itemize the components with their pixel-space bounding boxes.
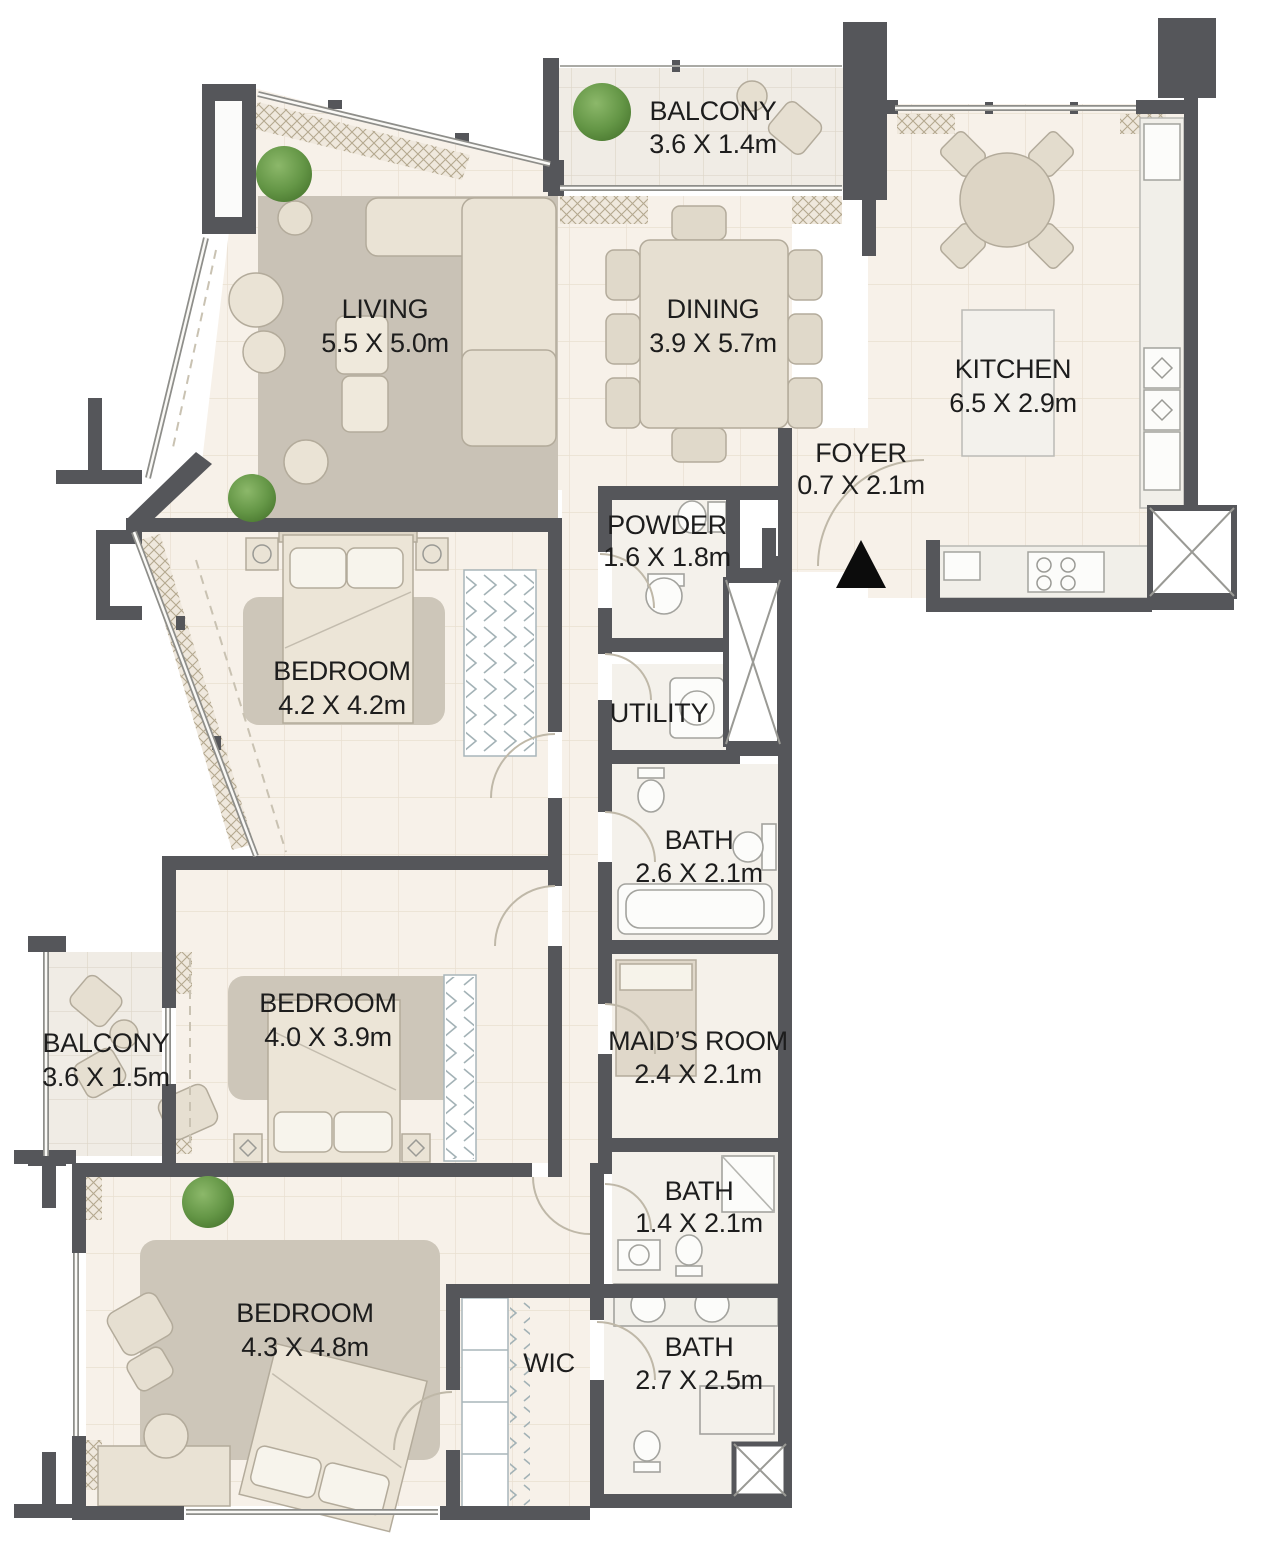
dining-chair: [606, 314, 640, 364]
foyer-label: FOYER: [815, 438, 907, 468]
sink: [629, 1245, 649, 1265]
shaft-icon: [1150, 508, 1234, 596]
closet: [462, 1298, 508, 1508]
maids-room-dims: 2.4 X 2.1m: [634, 1059, 762, 1089]
bedroom-1-dims: 4.2 X 4.2m: [278, 690, 406, 720]
pouf: [284, 440, 328, 484]
desk-chair: [144, 1414, 188, 1458]
dining-dims: 3.9 X 5.7m: [649, 328, 777, 358]
balcony-left-dims: 3.6 X 1.5m: [42, 1062, 170, 1092]
maids-room-label: MAID’S ROOM: [608, 1026, 788, 1056]
nightstand: [234, 1134, 262, 1162]
wic-label: WIC: [523, 1348, 575, 1378]
bedroom-3-dims: 4.3 X 4.8m: [241, 1332, 369, 1362]
pillar-recess: [215, 101, 242, 217]
sink: [944, 552, 980, 580]
floor-plan: BALCONY 3.6 X 1.4m LIVING 5.5 X 5.0m DIN…: [0, 0, 1265, 1557]
bath-1-label: BATH: [665, 825, 734, 855]
powder-dims: 1.6 X 1.8m: [603, 542, 731, 572]
living-dims: 5.5 X 5.0m: [321, 328, 449, 358]
vanity: [762, 824, 776, 870]
side-table: [278, 201, 312, 235]
round-table: [960, 153, 1054, 247]
pillow: [290, 548, 346, 588]
bathtub: [618, 884, 772, 934]
fridge: [1144, 432, 1180, 490]
pillow: [620, 964, 692, 990]
dining-chair: [606, 378, 640, 428]
foyer-dims: 0.7 X 2.1m: [797, 470, 925, 500]
shaft-icon: [726, 580, 780, 744]
balcony-left-label: BALCONY: [43, 1028, 170, 1058]
bath-3-dims: 2.7 X 2.5m: [635, 1365, 763, 1395]
nightstand: [416, 538, 448, 570]
kitchen-dims: 6.5 X 2.9m: [949, 388, 1077, 418]
armchair: [243, 331, 285, 373]
utility-label: UTILITY: [610, 698, 709, 728]
bath-2-dims: 1.4 X 2.1m: [635, 1208, 763, 1238]
bedroom-2-label: BEDROOM: [259, 988, 396, 1018]
pillow: [347, 548, 403, 588]
wic-furniture: [462, 1298, 530, 1508]
dining-label: DINING: [667, 294, 760, 324]
bedroom-3-furniture: [98, 1240, 440, 1532]
wardrobe-hatching: [446, 977, 474, 1159]
bedroom-1-label: BEDROOM: [273, 656, 410, 686]
dining-chair: [788, 250, 822, 300]
kitchen-label: KITCHEN: [955, 354, 1071, 384]
plant-icon: [256, 146, 312, 202]
toilet: [638, 780, 664, 812]
sofa-chaise: [462, 350, 556, 446]
nightstand: [246, 538, 278, 570]
wardrobe-hatching: [466, 572, 534, 754]
pillow: [334, 1112, 392, 1152]
bath-3-label: BATH: [665, 1332, 734, 1362]
plant-icon: [228, 474, 276, 522]
bedroom-2-dims: 4.0 X 3.9m: [264, 1022, 392, 1052]
toilet: [634, 1431, 660, 1461]
living-label: LIVING: [342, 294, 429, 324]
toilet-tank: [634, 1462, 660, 1472]
appliance: [1144, 348, 1180, 388]
bath-2-label: BATH: [665, 1176, 734, 1206]
plant-icon: [573, 83, 631, 141]
sink: [646, 578, 682, 614]
toilet-tank: [638, 768, 664, 778]
dining-chair: [672, 428, 726, 462]
oven: [1144, 124, 1180, 180]
closet-hatching: [510, 1300, 530, 1506]
dining-chair: [606, 250, 640, 300]
pillow: [274, 1112, 332, 1152]
nightstand: [402, 1134, 430, 1162]
appliance: [1144, 390, 1180, 430]
dining-chair: [788, 314, 822, 364]
dining-chair: [788, 378, 822, 428]
plant-icon: [182, 1176, 234, 1228]
armchair: [229, 273, 283, 327]
floor-plan-drawing: BALCONY 3.6 X 1.4m LIVING 5.5 X 5.0m DIN…: [0, 0, 1265, 1557]
shaft-icon: [734, 1444, 786, 1496]
powder-label: POWDER: [607, 510, 727, 540]
shafts: [726, 508, 1234, 1496]
coffee-table: [342, 376, 388, 432]
toilet: [676, 1235, 702, 1265]
dining-chair: [672, 206, 726, 240]
bath-1-dims: 2.6 X 2.1m: [635, 858, 763, 888]
balcony-top-label: BALCONY: [650, 96, 777, 126]
hallway-floor: [562, 486, 598, 1177]
toilet-tank: [676, 1266, 702, 1276]
balcony-top-dims: 3.6 X 1.4m: [649, 129, 777, 159]
bedroom-3-label: BEDROOM: [236, 1298, 373, 1328]
